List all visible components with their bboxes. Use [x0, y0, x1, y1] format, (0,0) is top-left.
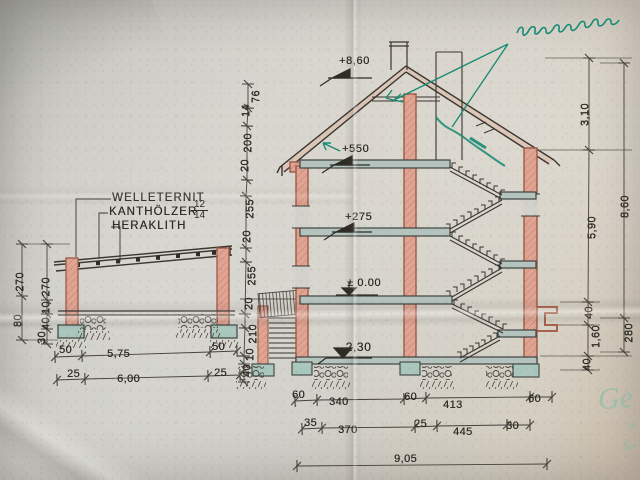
- dim-590: 5,90: [586, 216, 598, 239]
- annex-section: [54, 246, 239, 348]
- footings: [236, 362, 539, 389]
- dim-40: 40: [40, 317, 52, 330]
- level-ridge: +8,60: [339, 55, 370, 67]
- dim-20c: 20: [243, 297, 255, 310]
- dim-60b: 60: [404, 391, 417, 403]
- fraction-numerator: 12: [191, 200, 208, 210]
- dim-14: 14: [240, 104, 252, 117]
- dim-413: 413: [443, 399, 463, 411]
- level-attic: +550: [342, 143, 369, 155]
- fraction-denominator: 14: [191, 210, 208, 221]
- dim-20a: 20: [239, 159, 251, 172]
- main-building-section: [236, 42, 560, 389]
- dim-270-inner: 270: [40, 277, 52, 297]
- material-label-kanthoelzer: KANTHÖLZER: [109, 206, 197, 218]
- stamp-fragment-se: Se: [623, 438, 635, 454]
- dim-50-right: 50: [212, 341, 225, 353]
- level-basement: -2,30: [341, 340, 371, 354]
- material-label-heraklith: HERAKLITH: [112, 220, 186, 232]
- stamp-fragment-ge: Ge: [597, 381, 634, 417]
- dim-76: 76: [250, 90, 262, 103]
- dim-35: 35: [304, 417, 317, 429]
- dim-40r1: 40: [583, 306, 595, 319]
- dim-50-left: 50: [59, 344, 72, 356]
- level-upper: +275: [345, 211, 372, 223]
- section-linework: [0, 0, 640, 480]
- dim-340: 340: [329, 396, 349, 408]
- blueprint-photo: WELLETERNIT KANTHÖLZER HERAKLITH 12 14 +…: [0, 0, 640, 480]
- dim-10b: 10: [244, 348, 256, 361]
- dim-40r2: 40: [581, 358, 593, 371]
- dim-160: 1,60: [590, 325, 602, 348]
- dim-40b: 40: [241, 364, 253, 377]
- dim-860: 8,60: [619, 195, 631, 218]
- stamp-fragment-m: m: [628, 418, 637, 433]
- dim-10: 10: [40, 301, 52, 314]
- dim-270-outer: 270: [14, 272, 26, 292]
- green-handwriting: [517, 19, 619, 35]
- kantholz-size-fraction: 12 14: [191, 200, 208, 221]
- dim-370: 370: [338, 424, 358, 436]
- dim-280: 280: [623, 323, 635, 343]
- dim-255a: 255: [244, 199, 256, 219]
- dim-20b: 20: [241, 230, 253, 243]
- dim-30b: 30: [506, 420, 519, 432]
- dim-210: 210: [247, 324, 259, 344]
- level-ground: ± 0.00: [347, 277, 381, 289]
- dim-30: 30: [36, 331, 48, 344]
- staircase: [450, 167, 503, 362]
- dim-600: 6,00: [117, 373, 140, 385]
- dim-60a: 60: [292, 389, 305, 401]
- dim-25-right: 25: [214, 367, 227, 379]
- dim-25b: 25: [414, 418, 427, 430]
- dim-255b: 255: [246, 266, 258, 286]
- dim-25-left: 25: [67, 368, 80, 380]
- door-frame-detail: [537, 307, 557, 331]
- dim-310: 3,10: [579, 103, 591, 126]
- dim-80: 80: [12, 314, 24, 327]
- dim-200: 200: [242, 133, 254, 153]
- dim-575: 5,75: [107, 348, 130, 360]
- dim-total-905: 9,05: [394, 453, 417, 465]
- dim-445: 445: [453, 426, 473, 438]
- dim-60c: 60: [528, 393, 541, 405]
